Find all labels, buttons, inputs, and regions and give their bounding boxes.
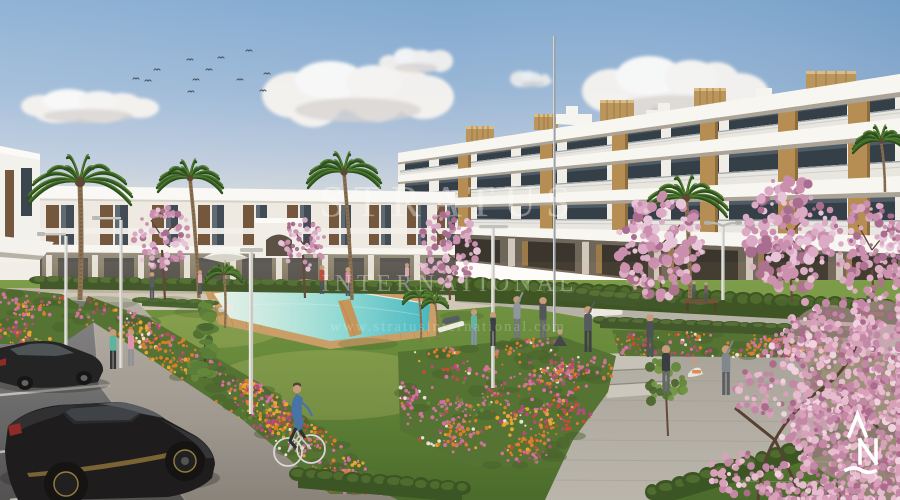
svg-text:www.stratusinternational.com: www.stratusinternational.com xyxy=(330,319,566,335)
svg-text:STRATUS: STRATUS xyxy=(320,177,581,226)
svg-text:INTERNATIONAL: INTERNATIONAL xyxy=(322,271,579,297)
